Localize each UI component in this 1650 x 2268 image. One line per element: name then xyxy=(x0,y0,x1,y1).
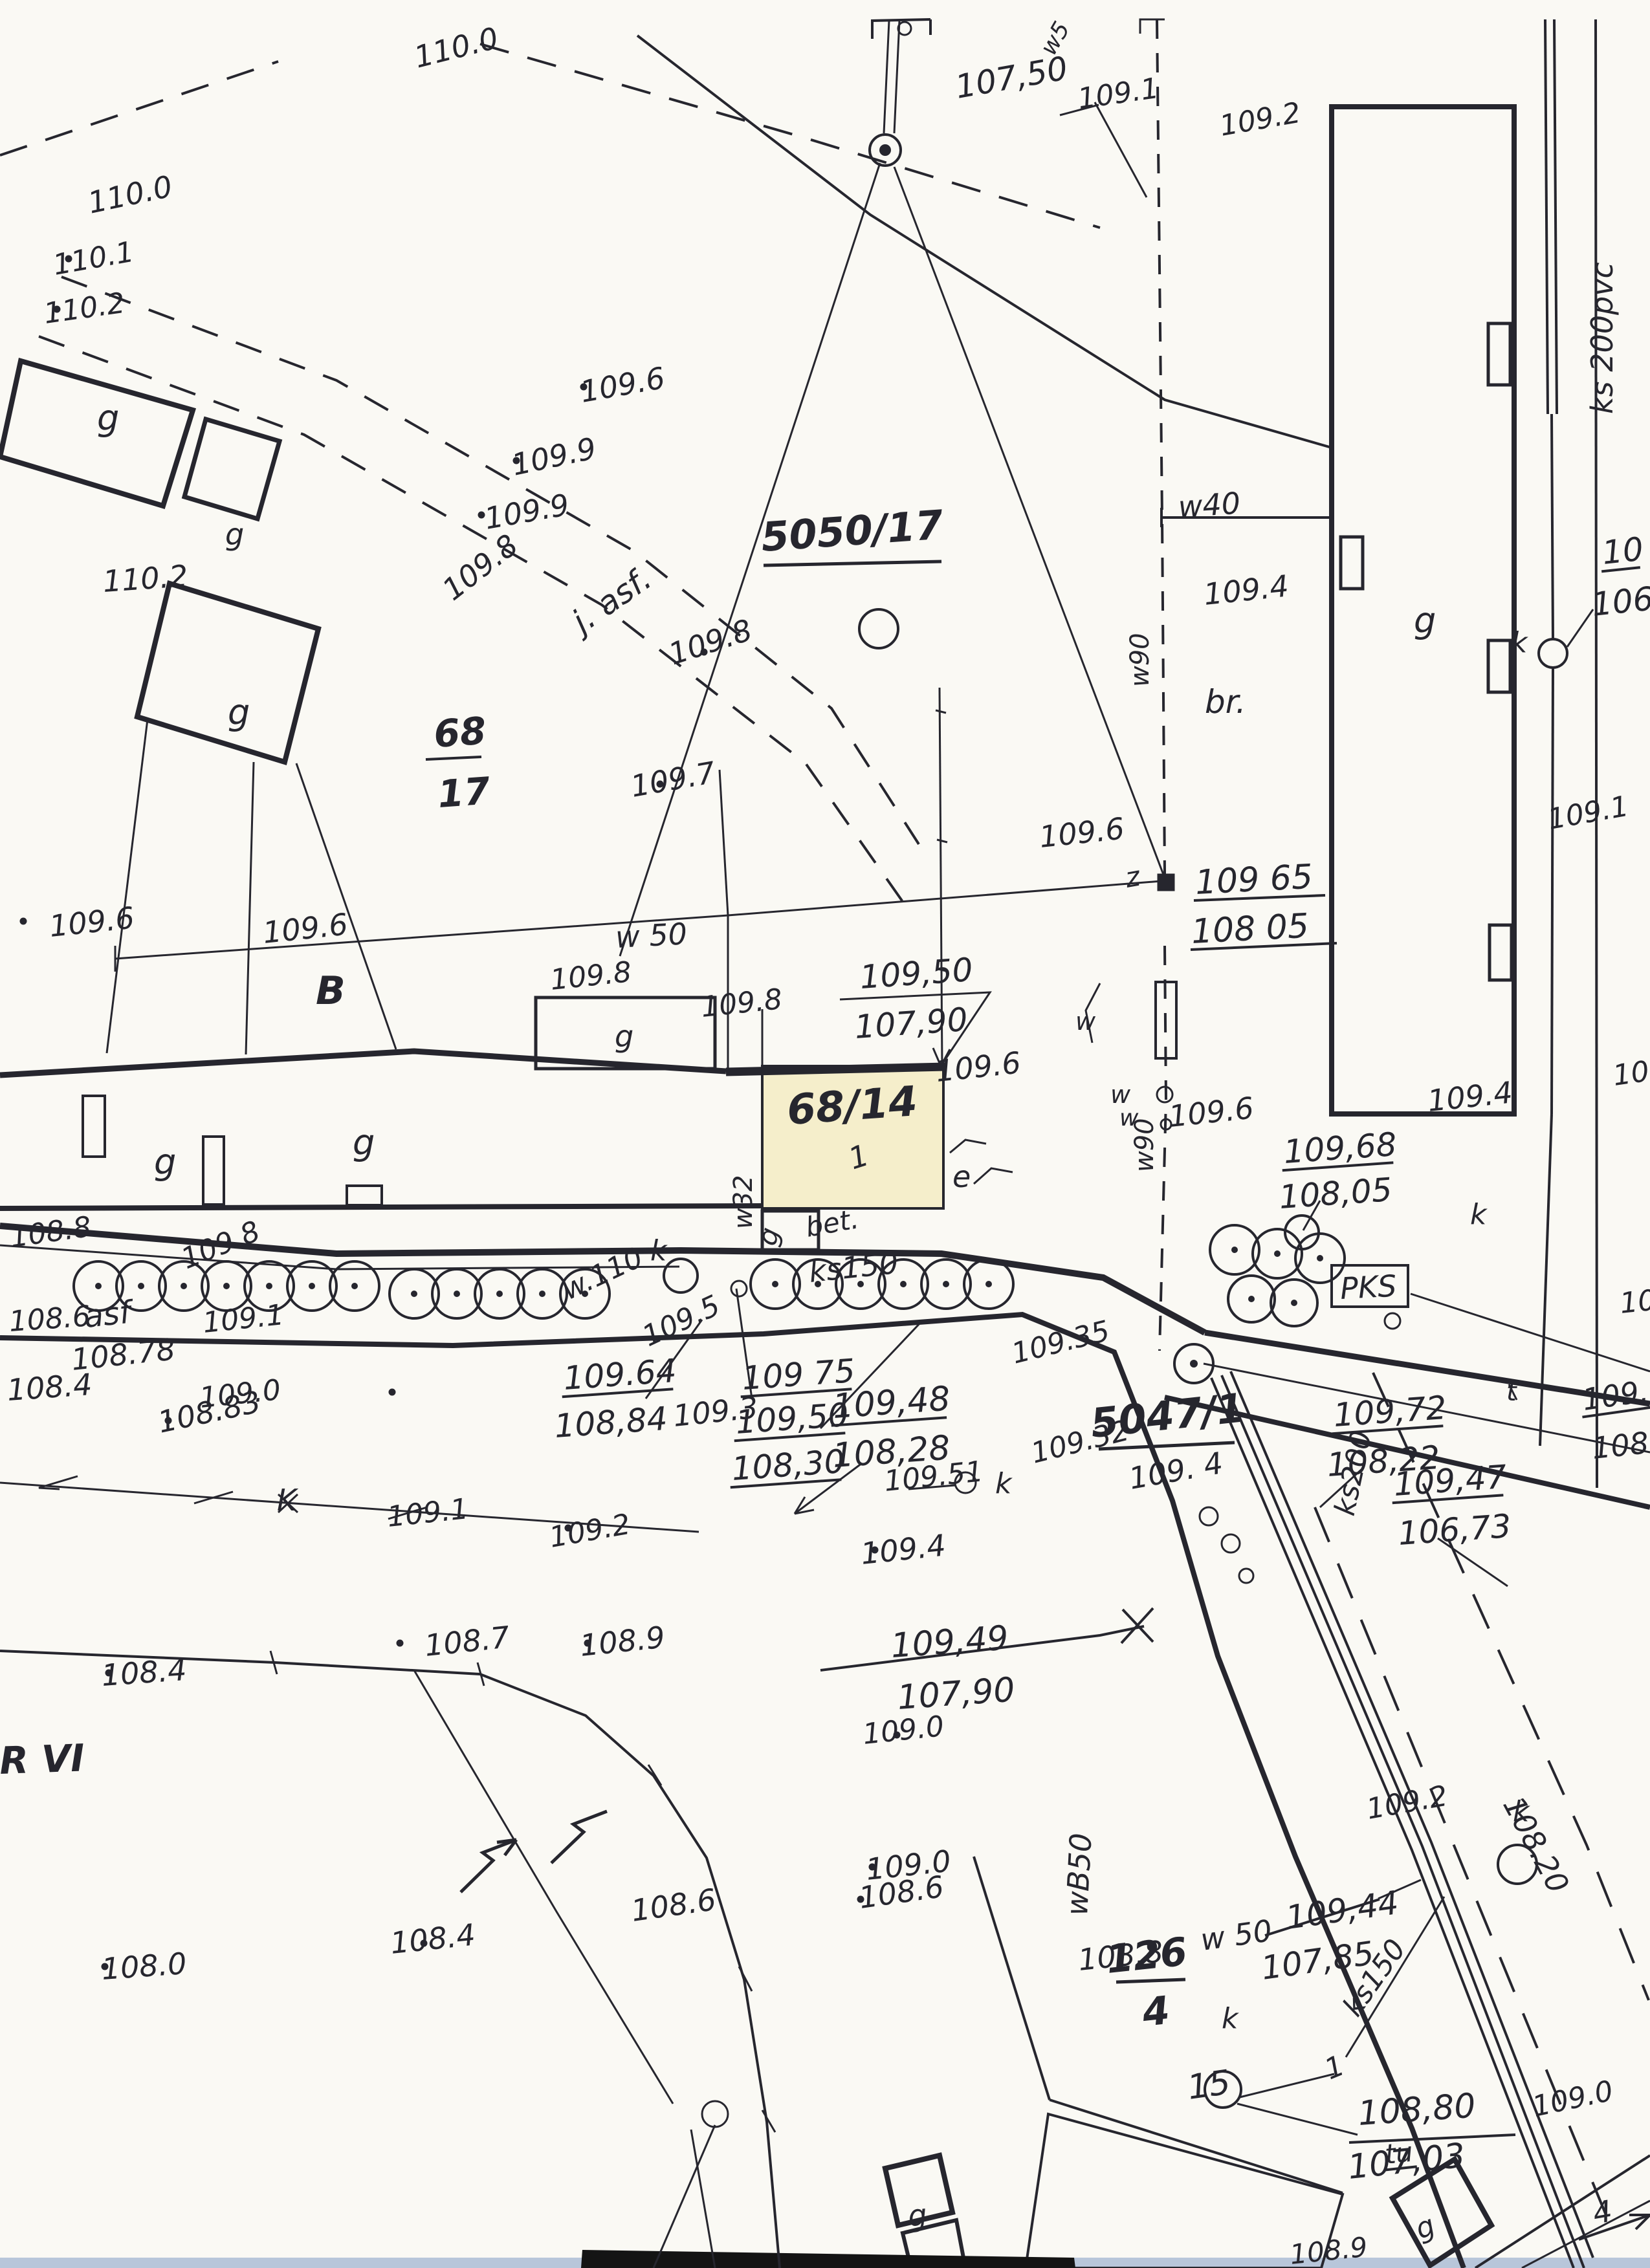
map-label: 109,49 xyxy=(890,1619,1010,1666)
bush-center-dot xyxy=(351,1283,358,1289)
bush-center-dot xyxy=(454,1291,460,1297)
map-label: 108,80 xyxy=(1357,2086,1477,2133)
bush-center-dot xyxy=(539,1291,545,1297)
map-line xyxy=(1596,19,1597,1488)
map-label: k xyxy=(1511,626,1528,659)
map-label: asf xyxy=(82,1294,136,1335)
bush-center-dot xyxy=(985,1281,992,1287)
map-label: g xyxy=(1414,600,1436,641)
map-label: w 50 xyxy=(615,916,688,955)
map-label: 109,50 xyxy=(859,951,974,996)
bush-center-dot xyxy=(1274,1250,1281,1257)
elevation-point-dot xyxy=(389,1389,396,1396)
map-label: w90 xyxy=(1125,633,1155,687)
map-label: tu xyxy=(1383,2136,1414,2170)
map-label: 68/14 xyxy=(786,1078,919,1135)
map-label: 107,90 xyxy=(853,1001,969,1046)
map-label: 68 xyxy=(432,709,487,756)
map-label: ks 200pvc xyxy=(1585,262,1620,414)
bush-center-dot xyxy=(1317,1255,1323,1261)
map-label: br. xyxy=(1205,683,1246,721)
bush-center-dot xyxy=(943,1281,949,1287)
map-label: 4 xyxy=(1139,1988,1172,2036)
bush-center-dot xyxy=(900,1281,907,1287)
map-label: k xyxy=(1222,2002,1239,2035)
map-label: PKS xyxy=(1339,1269,1398,1306)
map-label: w xyxy=(1075,1007,1096,1036)
map-label: 108,05 xyxy=(1278,1171,1394,1216)
map-rect xyxy=(1158,875,1174,890)
bush-center-dot xyxy=(496,1291,503,1297)
map-label: k xyxy=(1470,1198,1488,1231)
bush-center-dot xyxy=(138,1283,144,1289)
map-label: 108.4 xyxy=(6,1367,93,1408)
bush-center-dot xyxy=(772,1281,778,1287)
map-label: e xyxy=(952,1159,971,1194)
map-label: g xyxy=(228,692,250,733)
map-label: g xyxy=(353,1122,375,1163)
map-label: t xyxy=(1506,1377,1517,1407)
map-label: B xyxy=(316,968,346,1014)
map-line xyxy=(726,1067,946,1072)
bush-center-dot xyxy=(411,1291,417,1297)
map-label: k xyxy=(995,1467,1013,1500)
map-label: 108,84 xyxy=(553,1400,669,1445)
map-label: 126 xyxy=(1104,1929,1189,1983)
map-label: g xyxy=(907,2197,929,2234)
map-label: w40 xyxy=(1177,485,1242,525)
map-label: 108 05 xyxy=(1191,907,1310,952)
map-label: w xyxy=(1119,1105,1139,1131)
map-label: 107,90 xyxy=(896,1670,1017,1717)
map-label: 10 xyxy=(1618,1283,1650,1320)
manhole-symbol xyxy=(1190,1360,1198,1368)
map-label: R VI xyxy=(0,1736,85,1783)
map-label: g xyxy=(154,1142,176,1183)
map-label: 108.0 xyxy=(100,1946,188,1987)
map-label: wB50 xyxy=(1059,1832,1099,1916)
map-line xyxy=(1552,668,1553,1114)
map-label: 108 xyxy=(1590,1425,1650,1466)
map-line xyxy=(1552,414,1553,639)
scanned-survey-map-page: 110.0110.0110.1110.2110.2ggg6817109.6109… xyxy=(0,0,1650,2268)
map-label: w32 xyxy=(729,1175,758,1229)
map-canvas: 110.0110.0110.1110.2110.2ggg6817109.6109… xyxy=(0,0,1650,2268)
map-label: 106,73 xyxy=(1397,1507,1513,1553)
manhole-symbol xyxy=(879,144,891,156)
map-label: 10 xyxy=(1600,530,1645,572)
map-label: 106 xyxy=(1590,580,1650,624)
map-label: g xyxy=(225,517,244,552)
elevation-point-dot xyxy=(397,1640,404,1647)
bush-center-dot xyxy=(1231,1247,1238,1253)
map-label: 17 xyxy=(436,769,492,816)
bush-center-dot xyxy=(309,1283,315,1289)
map-label: k xyxy=(650,1234,668,1267)
bush-center-dot xyxy=(266,1283,272,1289)
bush-center-dot xyxy=(95,1283,102,1289)
map-label: 109 65 xyxy=(1194,858,1314,902)
bush-center-dot xyxy=(181,1283,187,1289)
map-label: 108.6 xyxy=(8,1300,91,1338)
map-label: 108.4 xyxy=(100,1652,188,1693)
elevation-point-dot xyxy=(20,918,27,925)
map-label: 110.2 xyxy=(102,558,189,599)
map-label: K xyxy=(277,1483,299,1518)
map-label: g xyxy=(615,1019,633,1054)
map-label: g xyxy=(97,398,119,439)
bush-center-dot xyxy=(1248,1296,1255,1302)
bush-center-dot xyxy=(1291,1300,1297,1306)
map-line xyxy=(0,1206,762,1208)
map-label: 15 xyxy=(1185,2063,1233,2108)
bush-center-dot xyxy=(223,1283,230,1289)
